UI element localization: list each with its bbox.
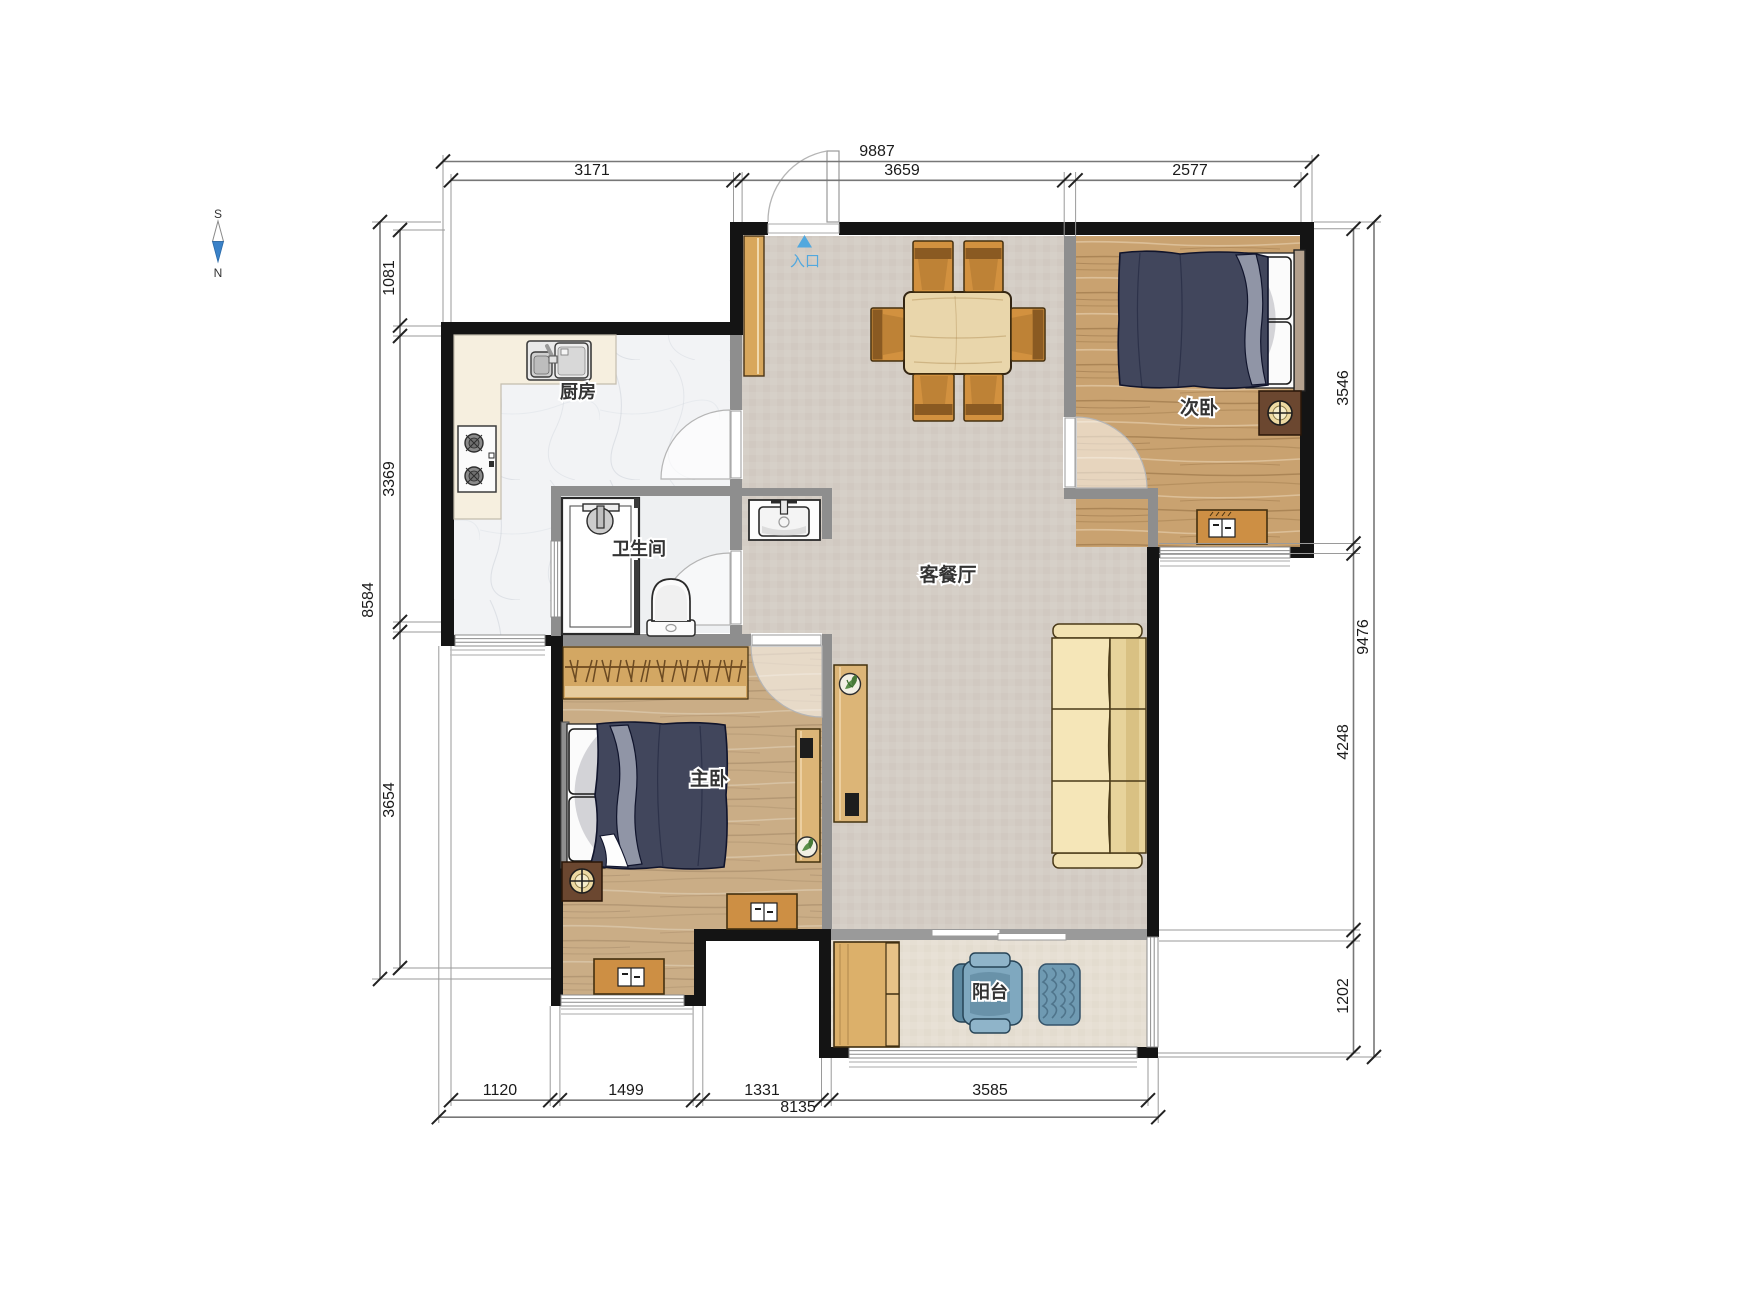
svg-text:9887: 9887 (859, 143, 895, 160)
svg-text:1120: 1120 (483, 1082, 518, 1099)
svg-text:3659: 3659 (884, 162, 920, 179)
svg-text:S: S (214, 207, 222, 221)
svg-text:3546: 3546 (1335, 370, 1352, 406)
svg-text:8584: 8584 (360, 582, 377, 618)
svg-text:3585: 3585 (972, 1082, 1008, 1099)
svg-text:3369: 3369 (381, 461, 398, 497)
svg-text:3171: 3171 (574, 162, 610, 179)
svg-text:客餐厅: 客餐厅 (919, 563, 976, 586)
svg-text:3654: 3654 (381, 782, 398, 818)
svg-text:主卧: 主卧 (690, 768, 728, 790)
svg-text:1202: 1202 (1335, 978, 1352, 1014)
svg-text:厨房: 厨房 (560, 381, 596, 402)
svg-text:9476: 9476 (1355, 619, 1372, 655)
svg-text:2577: 2577 (1172, 162, 1208, 179)
svg-text:1081: 1081 (381, 260, 398, 296)
svg-text:次卧: 次卧 (1180, 396, 1218, 419)
svg-text:1499: 1499 (608, 1082, 644, 1099)
svg-text:阳台: 阳台 (972, 981, 1008, 1002)
svg-text:入口: 入口 (790, 253, 820, 270)
svg-text:8135: 8135 (780, 1099, 816, 1116)
svg-text:4248: 4248 (1335, 724, 1352, 760)
svg-text:卫生间: 卫生间 (612, 538, 666, 559)
svg-text:N: N (214, 266, 223, 280)
svg-text:1331: 1331 (744, 1082, 780, 1099)
